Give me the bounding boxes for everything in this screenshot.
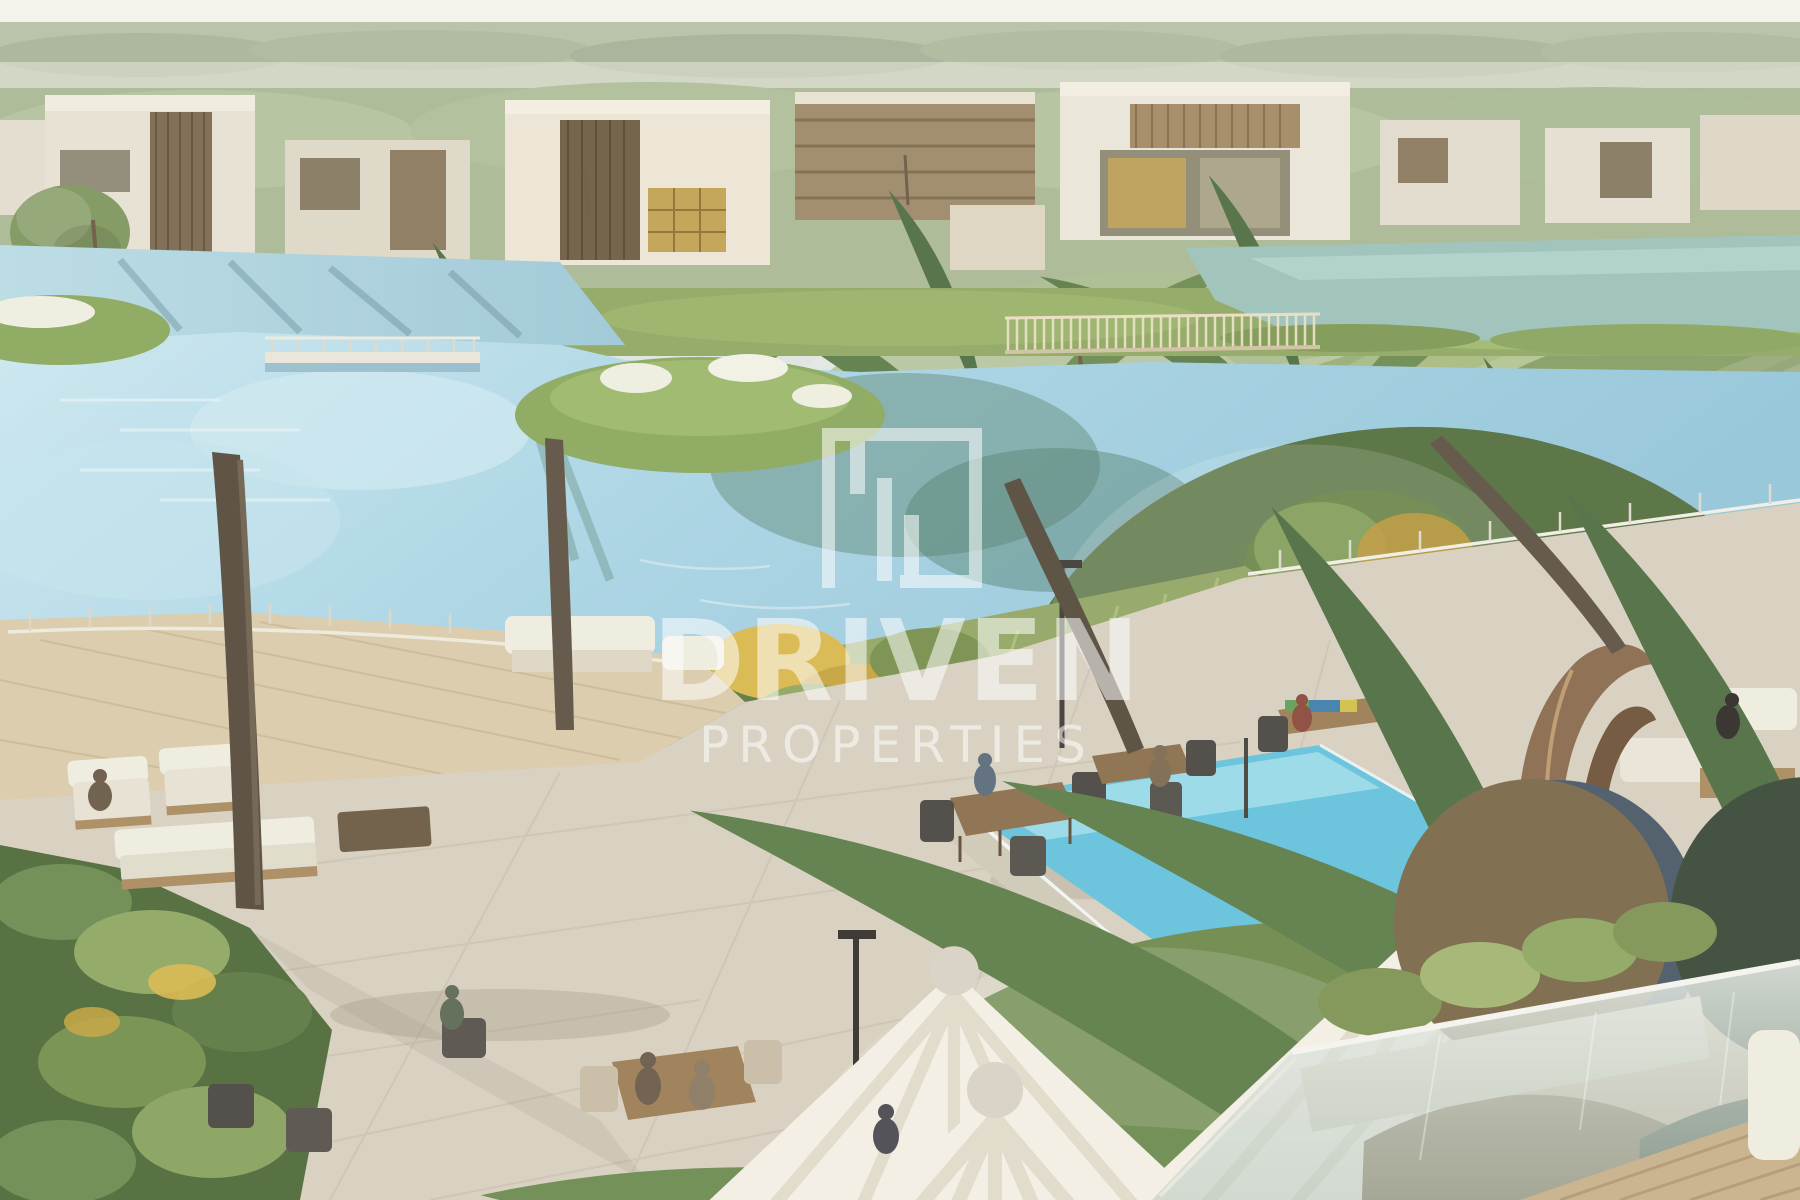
rendering-canvas: DRIVEN PROPERTIES [0,0,1800,1200]
rendering-scene: DRIVEN PROPERTIES [0,0,1800,1200]
watermark-brand: DRIVEN [652,597,1142,727]
watermark-subtitle: PROPERTIES [699,716,1095,774]
